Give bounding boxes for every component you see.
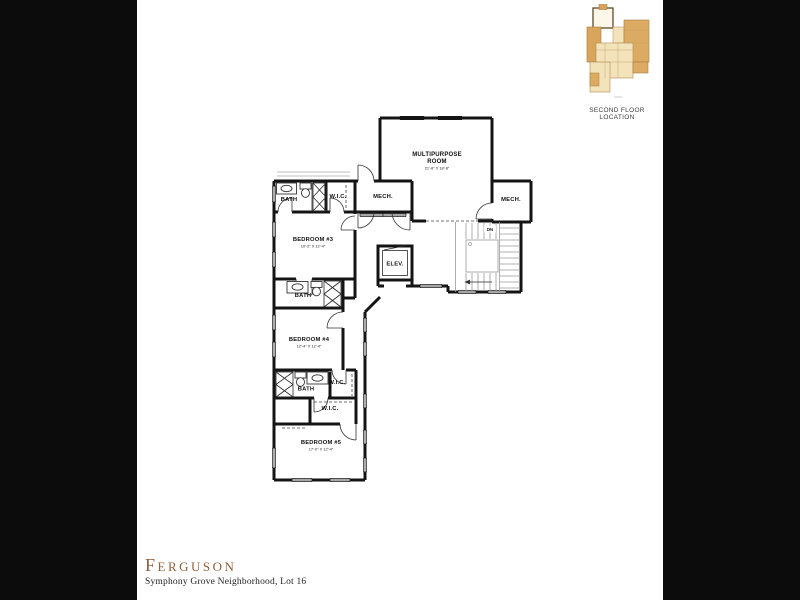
elevator-cab [383, 246, 408, 276]
mech-right-label: MECH. [501, 197, 521, 203]
bath-fixtures [276, 183, 341, 397]
plan-subtitle: Symphony Grove Neighborhood, Lot 16 [145, 577, 306, 587]
multipurpose-room-label: MULTIPURPOSE [412, 152, 462, 158]
bedroom4-label: BEDROOM #4 [289, 337, 330, 343]
multipurpose-room-dims: 21'-8" X 18'-8" [425, 166, 450, 171]
wic-top-label: W.I.C. [330, 194, 347, 200]
bedroom4-dims: 12'-4" X 12'-4" [297, 344, 322, 349]
second-floor-locator-thumbnail [587, 5, 649, 98]
window-symbols [272, 116, 506, 481]
bath-lower-label: BATH [298, 387, 314, 393]
floor-plan-drawing: DN [0, 0, 800, 600]
second-floor-location-caption: SECOND FLOOR LOCATION [576, 107, 658, 121]
deck-lines [277, 172, 350, 176]
multipurpose-room-label-2: ROOM [427, 159, 446, 165]
bedroom3-label: BEDROOM #3 [293, 237, 334, 243]
elevator-label: ELEV. [386, 262, 403, 268]
wic-lower-label: W.I.C. [322, 406, 339, 412]
plan-title: Ferguson [145, 555, 306, 575]
bedroom3-dims: 10'-2" X 12'-4" [301, 244, 326, 249]
room-labels: MULTIPURPOSE ROOM 21'-8" X 18'-8" MECH. … [281, 152, 521, 452]
bath-top-label: BATH [281, 197, 297, 203]
bedroom5-label: BEDROOM #5 [301, 440, 342, 446]
scanned-plan-page: DN [0, 0, 800, 600]
mech-left-label: MECH. [373, 194, 393, 200]
staircase: DN [456, 222, 521, 292]
bedroom5-dims: 17'-0" X 12'-4" [309, 447, 334, 452]
wic-mid-label: W.I.C. [329, 380, 346, 386]
bath-mid-label: BATH [295, 293, 311, 299]
stair-dn-label: DN [487, 227, 493, 232]
title-block: Ferguson Symphony Grove Neighborhood, Lo… [145, 555, 306, 587]
stair-direction-arrow [465, 280, 471, 285]
